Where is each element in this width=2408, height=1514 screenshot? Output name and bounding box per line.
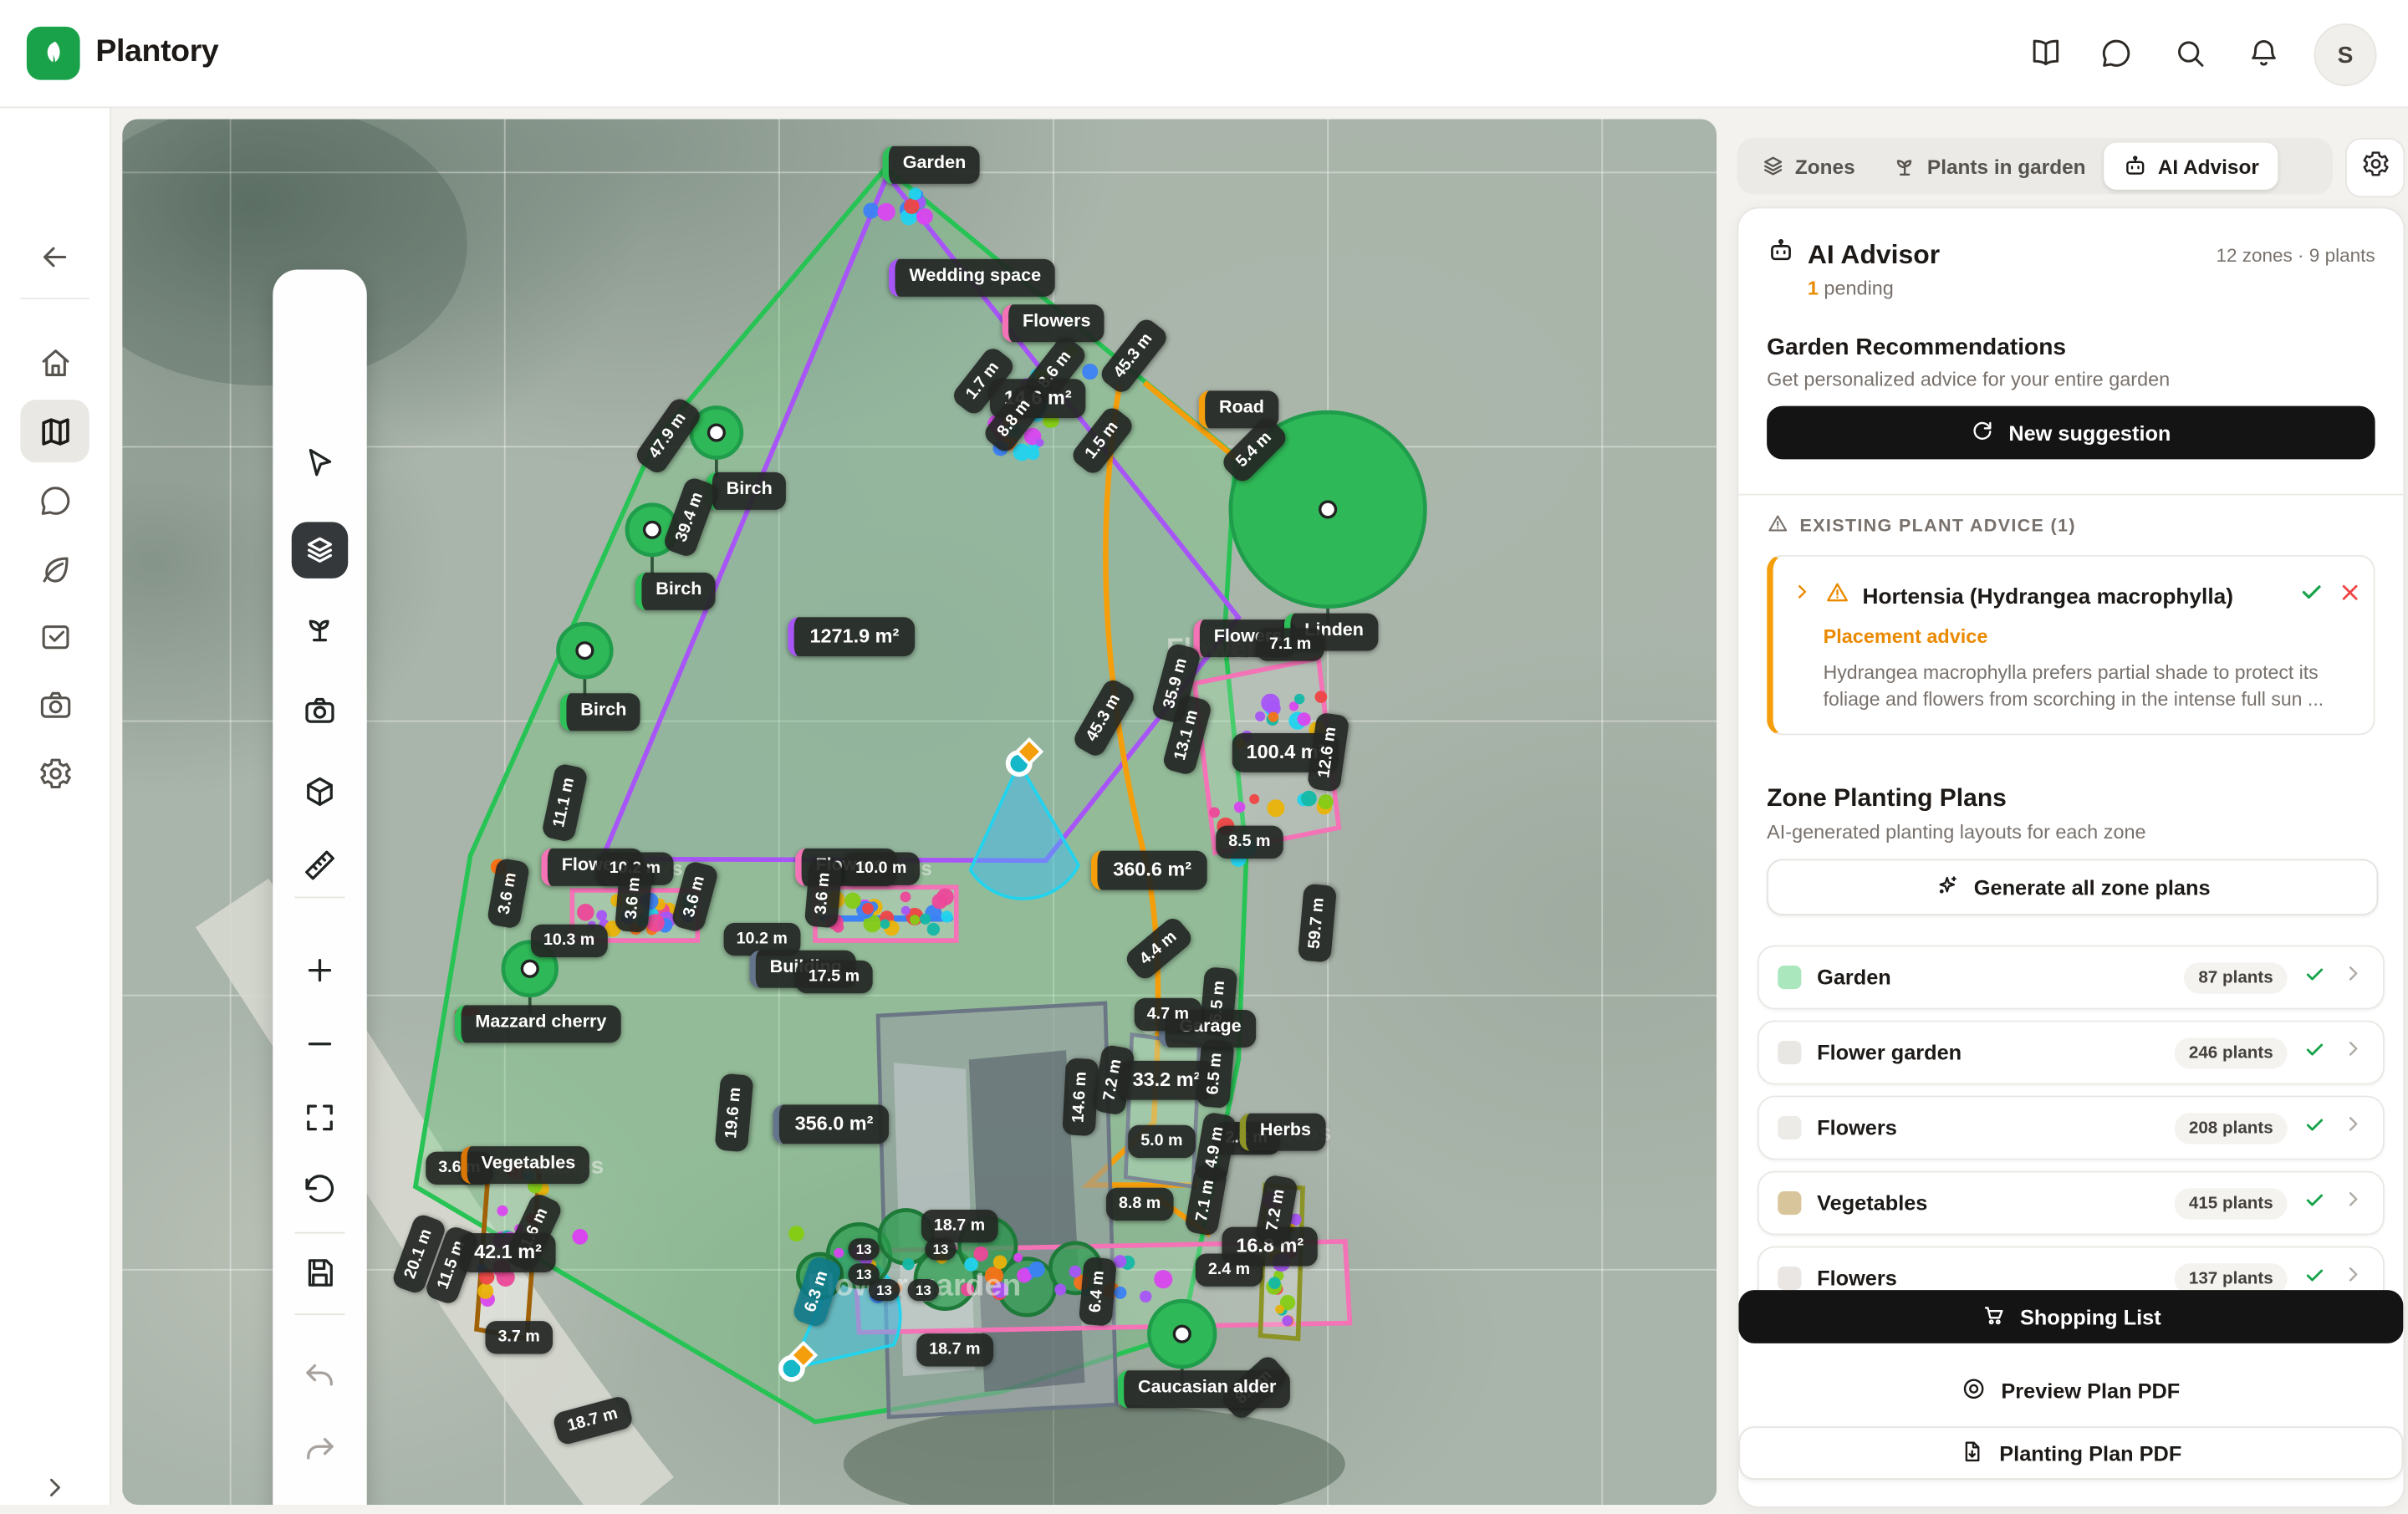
book-button[interactable] (2028, 36, 2063, 70)
arrow-left-icon (38, 239, 72, 273)
cart-icon (1981, 1302, 2006, 1327)
map-zone-label[interactable]: Birch (635, 573, 716, 609)
chevron-right-icon (2342, 962, 2364, 984)
check-icon (2303, 961, 2326, 993)
zone-plant-count: 415 plants (2175, 1187, 2288, 1219)
map-zone-label[interactable]: Herbs (1240, 1114, 1325, 1150)
book-icon (2028, 36, 2063, 70)
map-zone-label[interactable]: Caucasian alder (1118, 1370, 1291, 1407)
zone-color-swatch (1778, 1267, 1801, 1290)
map-tool-redo[interactable] (292, 1424, 349, 1481)
plus-icon (303, 953, 337, 987)
advice-card[interactable]: Hortensia (Hydrangea macrophylla) Placem… (1767, 555, 2375, 736)
map-measure-label: 3.7 m (485, 1321, 552, 1353)
map-tool-expand[interactable] (292, 1089, 349, 1146)
sparkles-icon (1935, 872, 1960, 897)
chevron-right-icon (2342, 1263, 2364, 1285)
map-tool-layers[interactable] (292, 522, 349, 579)
map-tool-cursor[interactable] (292, 434, 349, 491)
map-measure-label: 17.5 m (796, 961, 872, 992)
new-suggestion-button[interactable]: New suggestion (1767, 406, 2375, 460)
refresh-icon (1971, 419, 1994, 447)
map-measure-label: 2.4 m (1196, 1254, 1263, 1286)
ruler-icon (303, 848, 337, 882)
layers-icon (1761, 154, 1786, 179)
zone-color-swatch (1778, 1191, 1801, 1215)
toolbar-divider (295, 897, 345, 899)
chat-icon (37, 482, 73, 518)
chevron-right-icon[interactable] (2342, 1263, 2364, 1293)
sidebar-item-messages[interactable] (20, 469, 89, 532)
x-icon (2338, 579, 2363, 604)
map-tool-undo[interactable] (292, 1349, 349, 1406)
zone-plant-count: 246 plants (2175, 1037, 2288, 1068)
map-zone-label[interactable]: Mazzard cherry (455, 1005, 620, 1042)
check-icon (2303, 1112, 2326, 1144)
map-toolbar-left (273, 270, 367, 1506)
arrow-left-icon (38, 239, 72, 282)
recommendations-sub: Get personalized advice for your entire … (1767, 369, 2375, 390)
check-icon (2303, 1262, 2326, 1286)
warning-icon (1825, 579, 1850, 612)
sidebar-collapse-button[interactable] (32, 1467, 79, 1514)
gear-icon (2360, 149, 2390, 179)
layers-icon (303, 533, 337, 568)
map-zone-label[interactable]: Wedding space (889, 259, 1055, 296)
chevron-right-icon (41, 1473, 69, 1509)
search-icon (2173, 36, 2207, 70)
map-measure-label: 18.7 m (921, 1210, 997, 1241)
sidebar-item-settings[interactable] (20, 742, 89, 804)
gear-icon (2360, 149, 2390, 186)
check-square-icon (37, 619, 73, 655)
chat-button[interactable] (2099, 36, 2134, 70)
cart-icon (1981, 1302, 2006, 1332)
chevron-right-icon (2342, 1113, 2364, 1134)
map-measure-label: 6.5 m (1196, 1039, 1233, 1109)
toolbar-divider (295, 1232, 345, 1234)
map-measure-label: 10.0 m (843, 853, 919, 884)
map-measure-label: 59.7 m (1298, 884, 1336, 962)
map-measure-label: 8.8 m (1106, 1188, 1173, 1220)
toolbar-divider (295, 1313, 345, 1315)
zone-plan-row[interactable]: Vegetables415 plants (1758, 1171, 2385, 1236)
zone-plan-row[interactable]: Flowers208 plants (1758, 1096, 2385, 1160)
sidebar-item-tasks[interactable] (20, 605, 89, 668)
map-measure-label: 10.3 m (531, 925, 607, 956)
map-measure-label: 19.6 m (714, 1073, 752, 1152)
cursor-icon (303, 446, 337, 480)
panel-tabs: ZonesPlants in gardenAI Advisor (1737, 138, 2334, 195)
app-title: Plantory (95, 34, 218, 70)
app-root: Plantory S FlowersFlower gardenGarageVeg… (0, 0, 2408, 1505)
panel-settings-button[interactable] (2345, 138, 2405, 197)
map-zone-label[interactable]: Birch (560, 693, 640, 730)
dismiss-advice-button[interactable] (2338, 579, 2363, 612)
map-zone-label[interactable]: Vegetables (461, 1146, 589, 1183)
bell-button[interactable] (2247, 36, 2281, 70)
panel-stats: 12 zones · 9 plants (1767, 245, 2375, 267)
map-measure-label: 18.7 m (916, 1333, 992, 1365)
check-icon (2298, 579, 2325, 605)
accept-advice-button[interactable] (2298, 579, 2325, 613)
panel-footer: Shopping List Preview Plan PDF Planting … (1738, 1290, 2403, 1506)
back-button[interactable] (20, 229, 89, 292)
warning-icon (1825, 579, 1850, 604)
advice-body: Hydrangea macrophylla prefers partial sh… (1824, 660, 2354, 714)
map-tool-seedling[interactable] (292, 600, 349, 657)
gear-icon (37, 755, 73, 791)
plant-count-badge: 13 (869, 1279, 900, 1301)
generate-all-zone-plans-button[interactable]: Generate all zone plans (1767, 859, 2378, 916)
refresh-icon (1971, 419, 1994, 442)
robot-icon (2124, 154, 2149, 179)
zone-plans-sub: AI-generated planting layouts for each z… (1767, 822, 2375, 844)
sidebar-item-home[interactable] (20, 331, 89, 394)
map-measure-label: 7.1 m (1257, 628, 1324, 660)
map-measure-label: 5.0 m (1128, 1125, 1195, 1157)
map-area-label: 356.0 m² (773, 1104, 889, 1143)
plant-count-badge: 13 (925, 1238, 957, 1260)
chevron-right-icon[interactable] (1792, 582, 1812, 610)
chevron-right-icon (2342, 1037, 2364, 1059)
zone-color-swatch (1778, 1041, 1801, 1064)
cube-icon (303, 774, 337, 808)
undo-icon (303, 1361, 337, 1395)
sidebar-item-plants[interactable] (20, 538, 89, 600)
sidebar-divider (20, 298, 89, 299)
file-download-icon (1960, 1438, 1985, 1468)
map-tool-cube[interactable] (292, 763, 349, 820)
sidebar-item-map[interactable] (20, 400, 89, 462)
map-tool-ruler[interactable] (292, 837, 349, 894)
eye-icon (1962, 1375, 1987, 1405)
map-zone-label[interactable]: Garden (882, 146, 980, 183)
sidebar-item-photos[interactable] (20, 672, 89, 735)
map-measure-label: 3.6 m (804, 859, 842, 928)
camera-icon (303, 693, 337, 727)
zone-color-swatch (1778, 1116, 1801, 1139)
preview-plan-pdf-button[interactable]: Preview Plan PDF (1738, 1374, 2403, 1408)
zone-color-swatch (1778, 966, 1801, 989)
check-icon (2303, 1187, 2326, 1219)
shopping-list-button[interactable]: Shopping List (1738, 1290, 2403, 1343)
camera-icon (37, 686, 73, 721)
map-measure-label: 3.6 m (615, 864, 652, 933)
pending-status: 1 pending (1808, 278, 1894, 299)
leaf-icon (37, 551, 73, 587)
rotate-ccw-icon (303, 1174, 337, 1208)
sparkles-icon (1935, 872, 1960, 902)
chevron-right-icon (2342, 1188, 2364, 1210)
chevron-right-icon[interactable] (2342, 962, 2364, 992)
map-area-label: 360.6 m² (1091, 851, 1207, 890)
app-logo[interactable] (27, 27, 80, 80)
tab-plants-in-garden[interactable]: Plants in garden (1874, 143, 2104, 190)
warning-icon (1767, 512, 1788, 539)
advice-type: Placement advice (1824, 625, 1988, 647)
redo-icon (303, 1435, 337, 1469)
zone-plans-heading: Zone Planting Plans (1767, 785, 2375, 813)
warning-icon (1767, 512, 1788, 534)
advice-plant-name: Hortensia (Hydrangea macrophylla) (1863, 584, 2286, 609)
zone-plan-row[interactable]: Flower garden246 plants (1758, 1021, 2385, 1085)
chevron-right-icon (1792, 582, 1812, 602)
expand-icon (303, 1100, 337, 1134)
map-tool-camera[interactable] (292, 682, 349, 739)
tab-zones[interactable]: Zones (1742, 143, 1874, 190)
zone-plant-count: 87 plants (2184, 961, 2287, 993)
map-measure-label: 4.7 m (1135, 998, 1201, 1030)
chevron-right-icon (41, 1473, 69, 1501)
map-zone-label[interactable]: Birch (706, 472, 786, 509)
map-tool-trash[interactable] (292, 1496, 349, 1505)
bell-icon (2247, 36, 2281, 70)
leaf-logo-icon (38, 38, 69, 69)
recommendations-heading: Garden Recommendations (1767, 334, 2375, 360)
advice-section-heading: EXISTING PLANT ADVICE (1) (1767, 512, 2375, 539)
minus-icon (303, 1027, 337, 1061)
chevron-right-icon[interactable] (2342, 1037, 2364, 1068)
divider (1738, 494, 2403, 496)
home-icon (37, 344, 73, 380)
planting-plan-pdf-button[interactable]: Planting Plan PDF (1738, 1426, 2403, 1480)
chevron-right-icon[interactable] (2342, 1113, 2364, 1143)
zone-plant-count: 208 plants (2175, 1112, 2288, 1144)
map-area-label: 42.1 m² (460, 1233, 556, 1272)
file-download-icon (1960, 1438, 1985, 1463)
seedling-icon (303, 611, 337, 645)
map-area-label: 1271.9 m² (788, 617, 915, 655)
map-tool-rotate-ccw[interactable] (292, 1163, 349, 1220)
map-tool-plus[interactable] (292, 942, 349, 999)
chevron-right-icon[interactable] (2342, 1188, 2364, 1218)
check-icon (2303, 1112, 2326, 1135)
check-icon (2303, 1037, 2326, 1068)
tab-ai-advisor[interactable]: AI Advisor (2104, 143, 2278, 190)
chat-icon (2099, 36, 2134, 70)
map-tool-save[interactable] (292, 1245, 349, 1302)
save-icon (303, 1256, 337, 1290)
map-tool-minus[interactable] (292, 1016, 349, 1073)
header: Plantory S (0, 0, 2408, 108)
sidebar (0, 107, 111, 1506)
seedling-icon (1893, 154, 1918, 179)
map-icon (37, 413, 73, 449)
garden-map[interactable]: FlowersFlower gardenGarageVegetablesHerb… (122, 120, 1717, 1506)
map-measure-label: 6.4 m (1079, 1257, 1116, 1326)
plant-count-badge: 13 (848, 1238, 880, 1260)
map-zone-label[interactable]: Flowers (1002, 304, 1105, 341)
map-measure-label: 8.5 m (1216, 826, 1283, 858)
check-icon (2303, 961, 2326, 985)
check-icon (2303, 1187, 2326, 1211)
eye-icon (1962, 1375, 1987, 1400)
search-button[interactable] (2173, 36, 2207, 70)
plant-count-badge: 13 (908, 1279, 940, 1301)
zone-plan-row[interactable]: Garden87 plants (1758, 946, 2385, 1010)
ai-advisor-panel: AI Advisor 12 zones · 9 plants 1 pending… (1737, 207, 2405, 1508)
avatar[interactable]: S (2314, 23, 2377, 86)
check-icon (2303, 1037, 2326, 1060)
